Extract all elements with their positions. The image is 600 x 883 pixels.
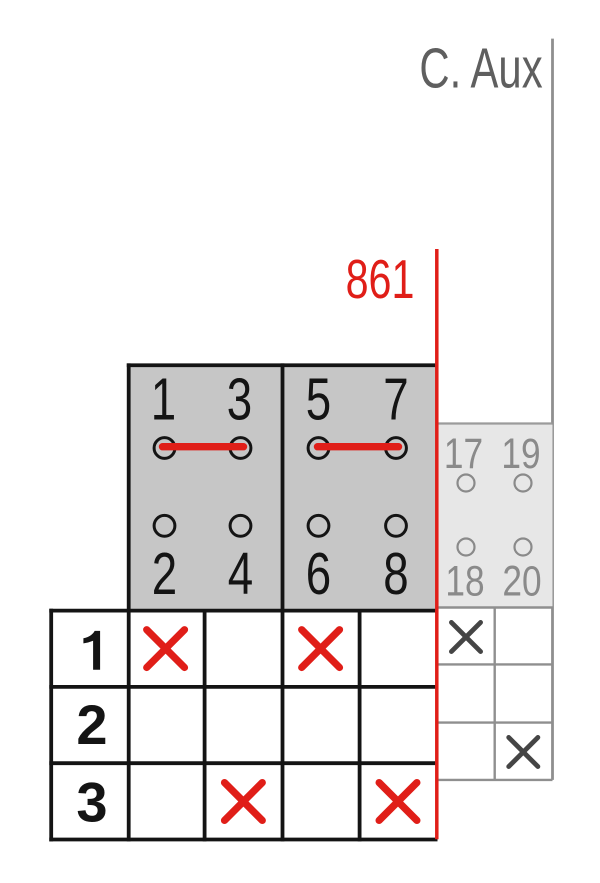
svg-text:861: 861 [346,249,415,310]
svg-text:20: 20 [502,557,541,605]
svg-text:8: 8 [383,542,408,608]
svg-text:C. Aux: C. Aux [419,36,542,100]
svg-text:2: 2 [152,542,177,608]
svg-text:6: 6 [306,542,331,608]
svg-text:5: 5 [306,367,331,433]
svg-text:18: 18 [445,557,484,605]
svg-text:2: 2 [76,693,107,756]
svg-text:3: 3 [76,771,107,834]
svg-text:1: 1 [151,367,176,433]
svg-text:19: 19 [501,430,540,478]
svg-text:17: 17 [444,430,483,478]
svg-text:3: 3 [227,367,252,433]
svg-text:4: 4 [228,542,253,608]
svg-text:7: 7 [383,367,408,433]
